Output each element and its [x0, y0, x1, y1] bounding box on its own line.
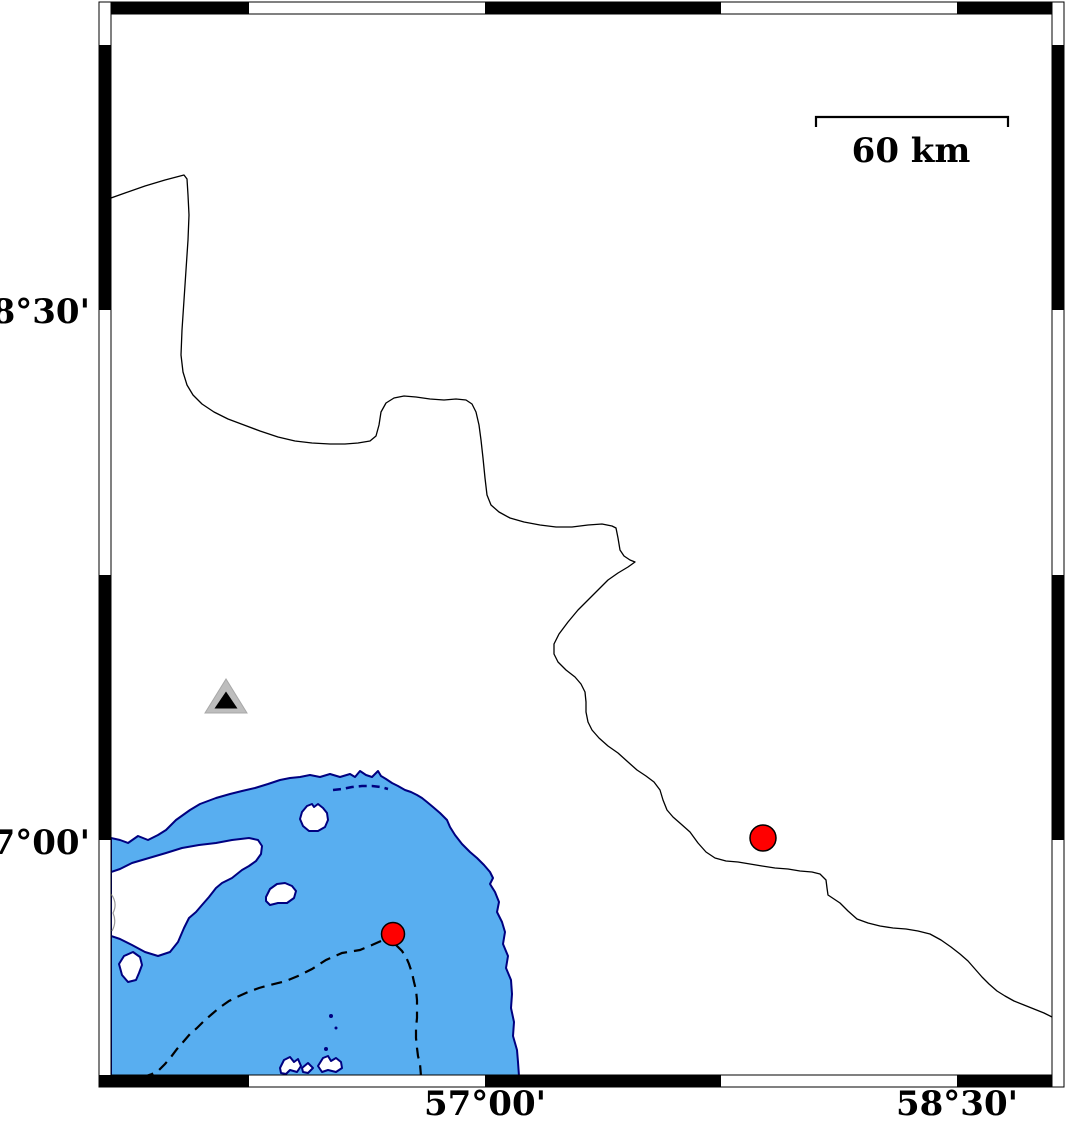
lon-label-east: 58°30' — [896, 1084, 1018, 1123]
map-svg: 60 km 28°30' 27°00' 57°00' 58°30' — [0, 0, 1066, 1123]
frame-seg — [1052, 575, 1064, 840]
frame-seg — [485, 2, 721, 14]
islet-dot — [324, 1047, 328, 1051]
islet-dot — [335, 1027, 338, 1030]
lon-label-west: 57°00' — [424, 1084, 546, 1123]
map-figure: 60 km 28°30' 27°00' 57°00' 58°30' — [0, 0, 1066, 1123]
scale-bar-label: 60 km — [852, 131, 971, 171]
epicenter-marker-east — [750, 825, 776, 851]
frame-seg — [99, 575, 111, 840]
lat-label-upper: 28°30' — [0, 292, 90, 332]
frame-seg — [1052, 45, 1064, 310]
frame-seg — [111, 2, 249, 14]
lat-label-lower: 27°00' — [0, 823, 90, 863]
frame-seg — [99, 45, 111, 310]
frame-seg — [957, 2, 1052, 14]
islet-dot — [329, 1014, 333, 1018]
epicenter-marker-sea — [382, 923, 405, 946]
frame-seg — [99, 1075, 249, 1087]
round-island — [300, 804, 328, 831]
